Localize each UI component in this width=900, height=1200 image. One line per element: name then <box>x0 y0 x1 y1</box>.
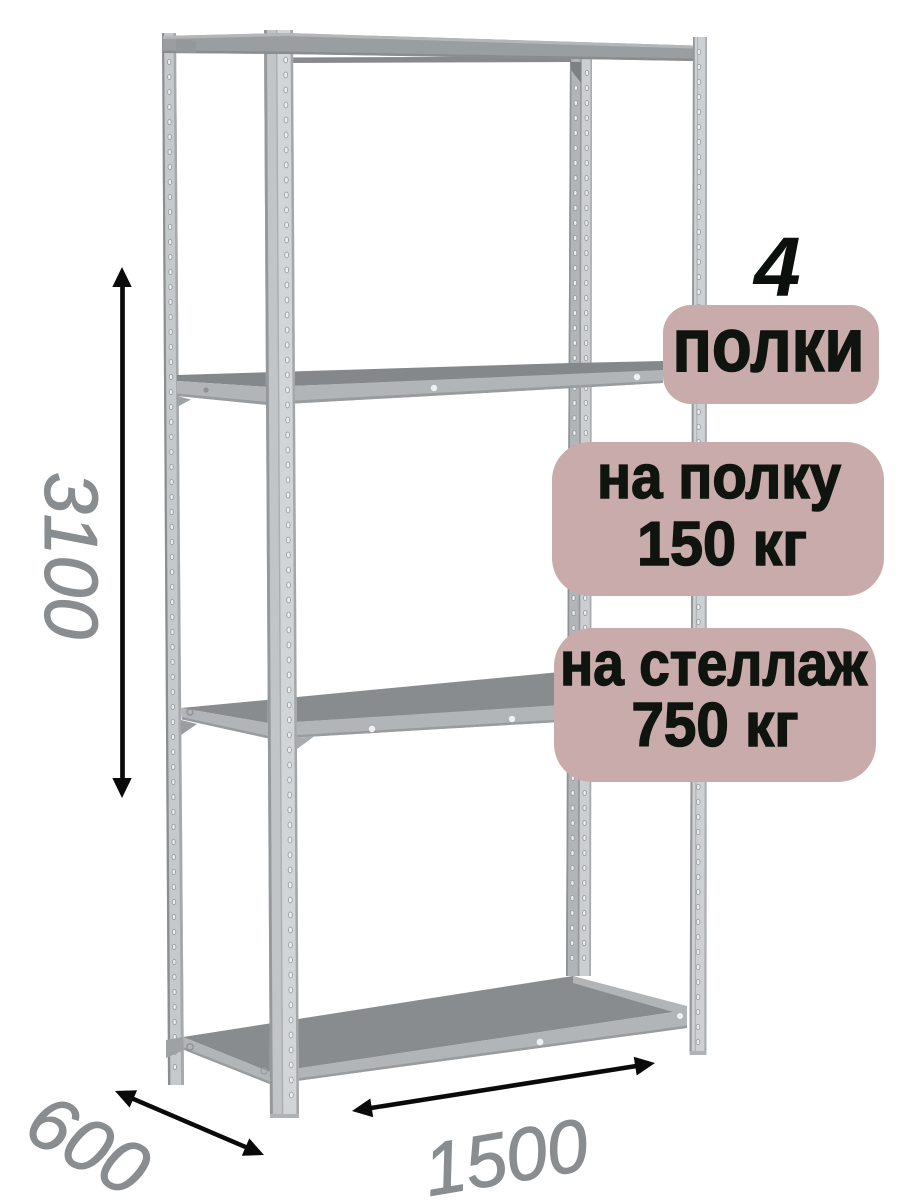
svg-text:на стеллаж: на стеллаж <box>560 630 868 699</box>
svg-text:3100: 3100 <box>29 472 113 639</box>
svg-text:750 кг: 750 кг <box>632 691 799 760</box>
svg-text:на полку: на полку <box>597 443 841 512</box>
svg-text:полки: полки <box>673 303 865 388</box>
svg-text:150 кг: 150 кг <box>637 510 807 579</box>
svg-text:4: 4 <box>752 220 801 314</box>
